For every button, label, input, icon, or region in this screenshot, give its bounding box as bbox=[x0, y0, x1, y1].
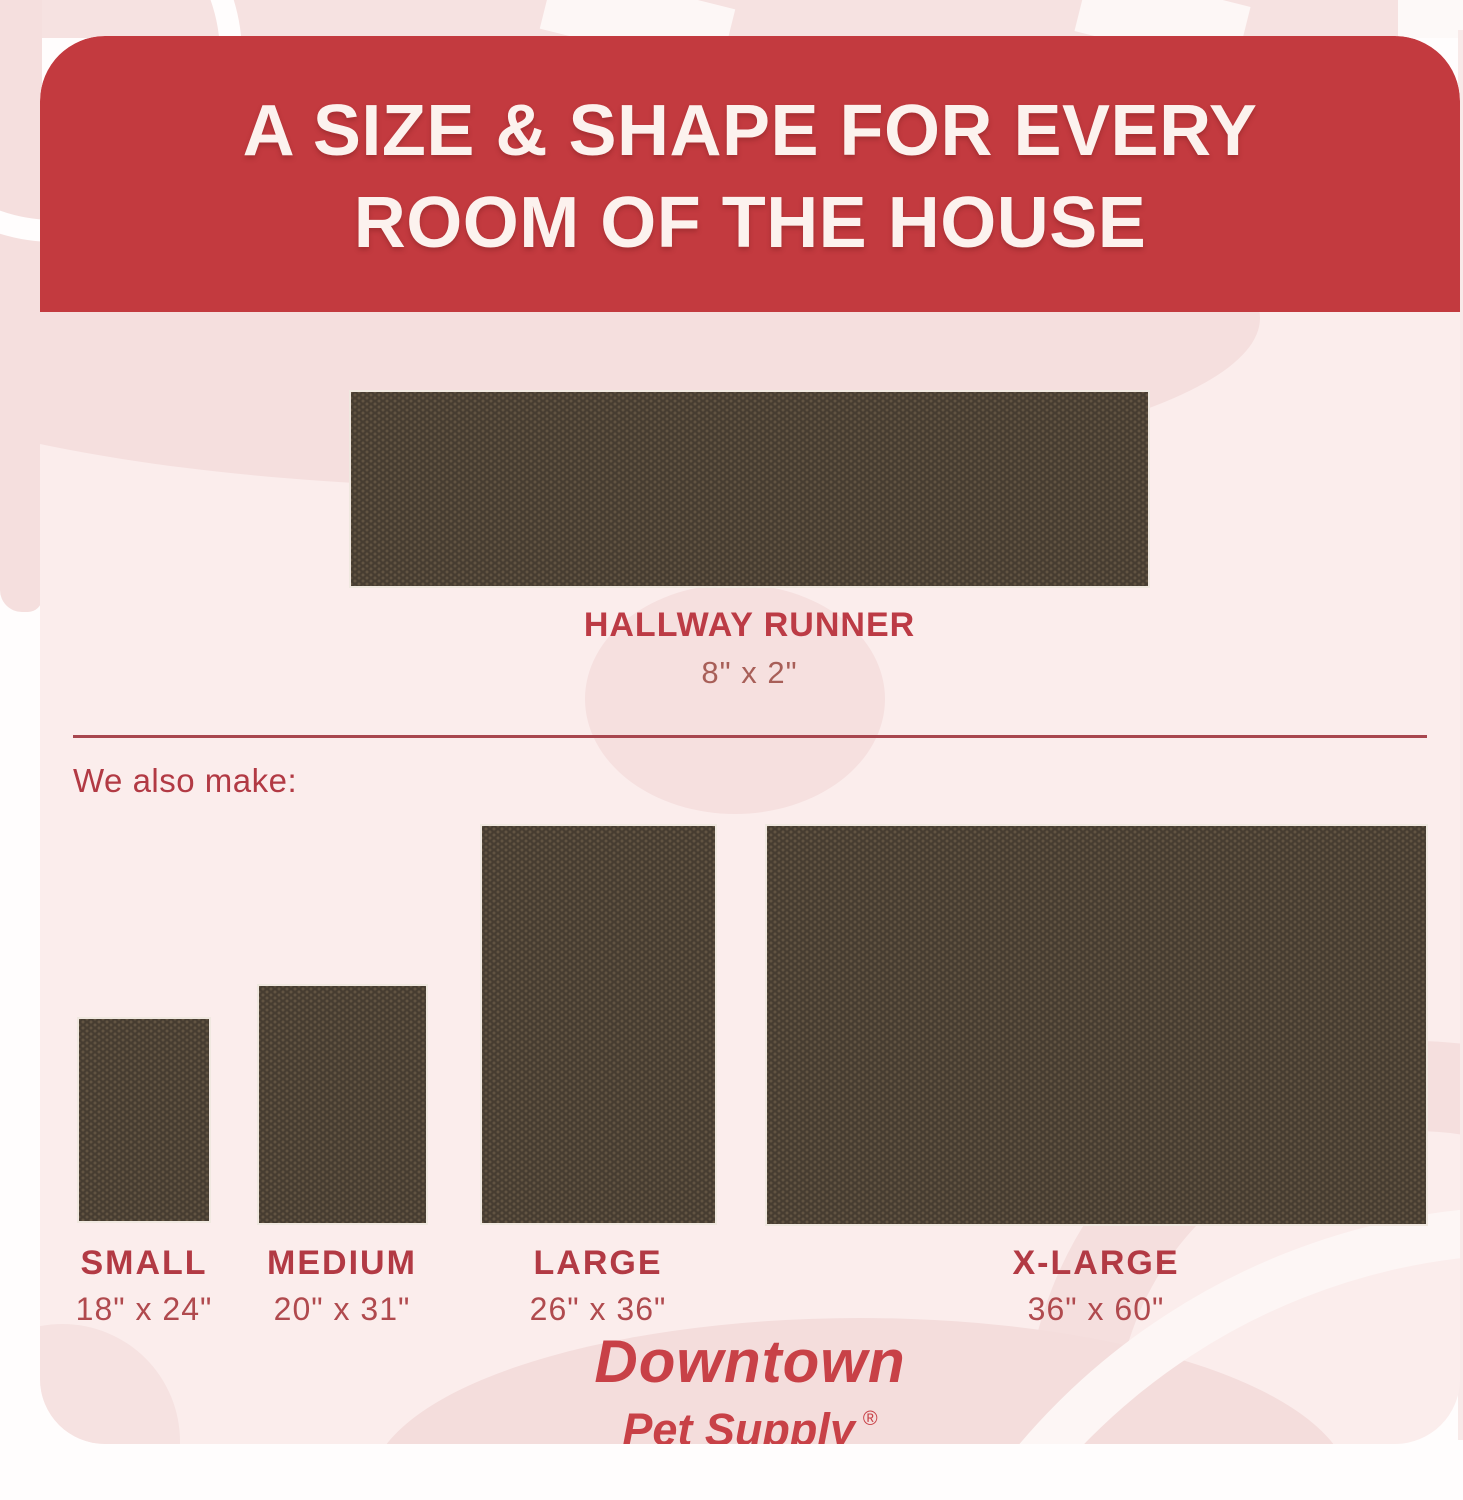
page-title-line1: A SIZE & SHAPE FOR EVERY bbox=[243, 85, 1258, 177]
hallway-runner-size: 8" x 2" bbox=[349, 655, 1150, 691]
mat-size-xlarge: 36" x 60" bbox=[896, 1291, 1296, 1328]
decor-blob-bottom-left bbox=[40, 1324, 180, 1444]
mat-caption-xlarge: X-LARGE 36" x 60" bbox=[896, 1244, 1296, 1328]
also-make-label: We also make: bbox=[73, 762, 297, 800]
section-divider bbox=[73, 735, 1427, 738]
brand-name-secondary: Pet Supply® bbox=[350, 1394, 1150, 1444]
brand-name-secondary-text: Pet Supply bbox=[622, 1404, 855, 1444]
registered-trademark-icon: ® bbox=[863, 1408, 878, 1430]
hallway-runner-name: HALLWAY RUNNER bbox=[349, 606, 1150, 645]
hallway-runner-caption: HALLWAY RUNNER 8" x 2" bbox=[349, 606, 1150, 691]
mat-swatch-xlarge bbox=[765, 824, 1428, 1226]
mat-swatch-medium bbox=[257, 984, 428, 1225]
decor-top-right-corner bbox=[1398, 0, 1463, 38]
mat-swatch-small bbox=[77, 1017, 211, 1223]
mat-name-xlarge: X-LARGE bbox=[896, 1244, 1296, 1283]
mat-name-large: LARGE bbox=[398, 1244, 798, 1283]
mat-caption-large: LARGE 26" x 36" bbox=[398, 1244, 798, 1328]
header-banner: A SIZE & SHAPE FOR EVERY ROOM OF THE HOU… bbox=[40, 36, 1460, 312]
brand-logo: Downtown Pet Supply® bbox=[350, 1332, 1150, 1444]
mat-swatch-large bbox=[480, 824, 717, 1225]
page-title-line2: ROOM OF THE HOUSE bbox=[354, 177, 1147, 269]
product-infographic-card: A SIZE & SHAPE FOR EVERY ROOM OF THE HOU… bbox=[40, 36, 1460, 1444]
brand-name-primary: Downtown bbox=[350, 1332, 1150, 1392]
hallway-runner-swatch bbox=[349, 390, 1150, 588]
mat-size-large: 26" x 36" bbox=[398, 1291, 798, 1328]
